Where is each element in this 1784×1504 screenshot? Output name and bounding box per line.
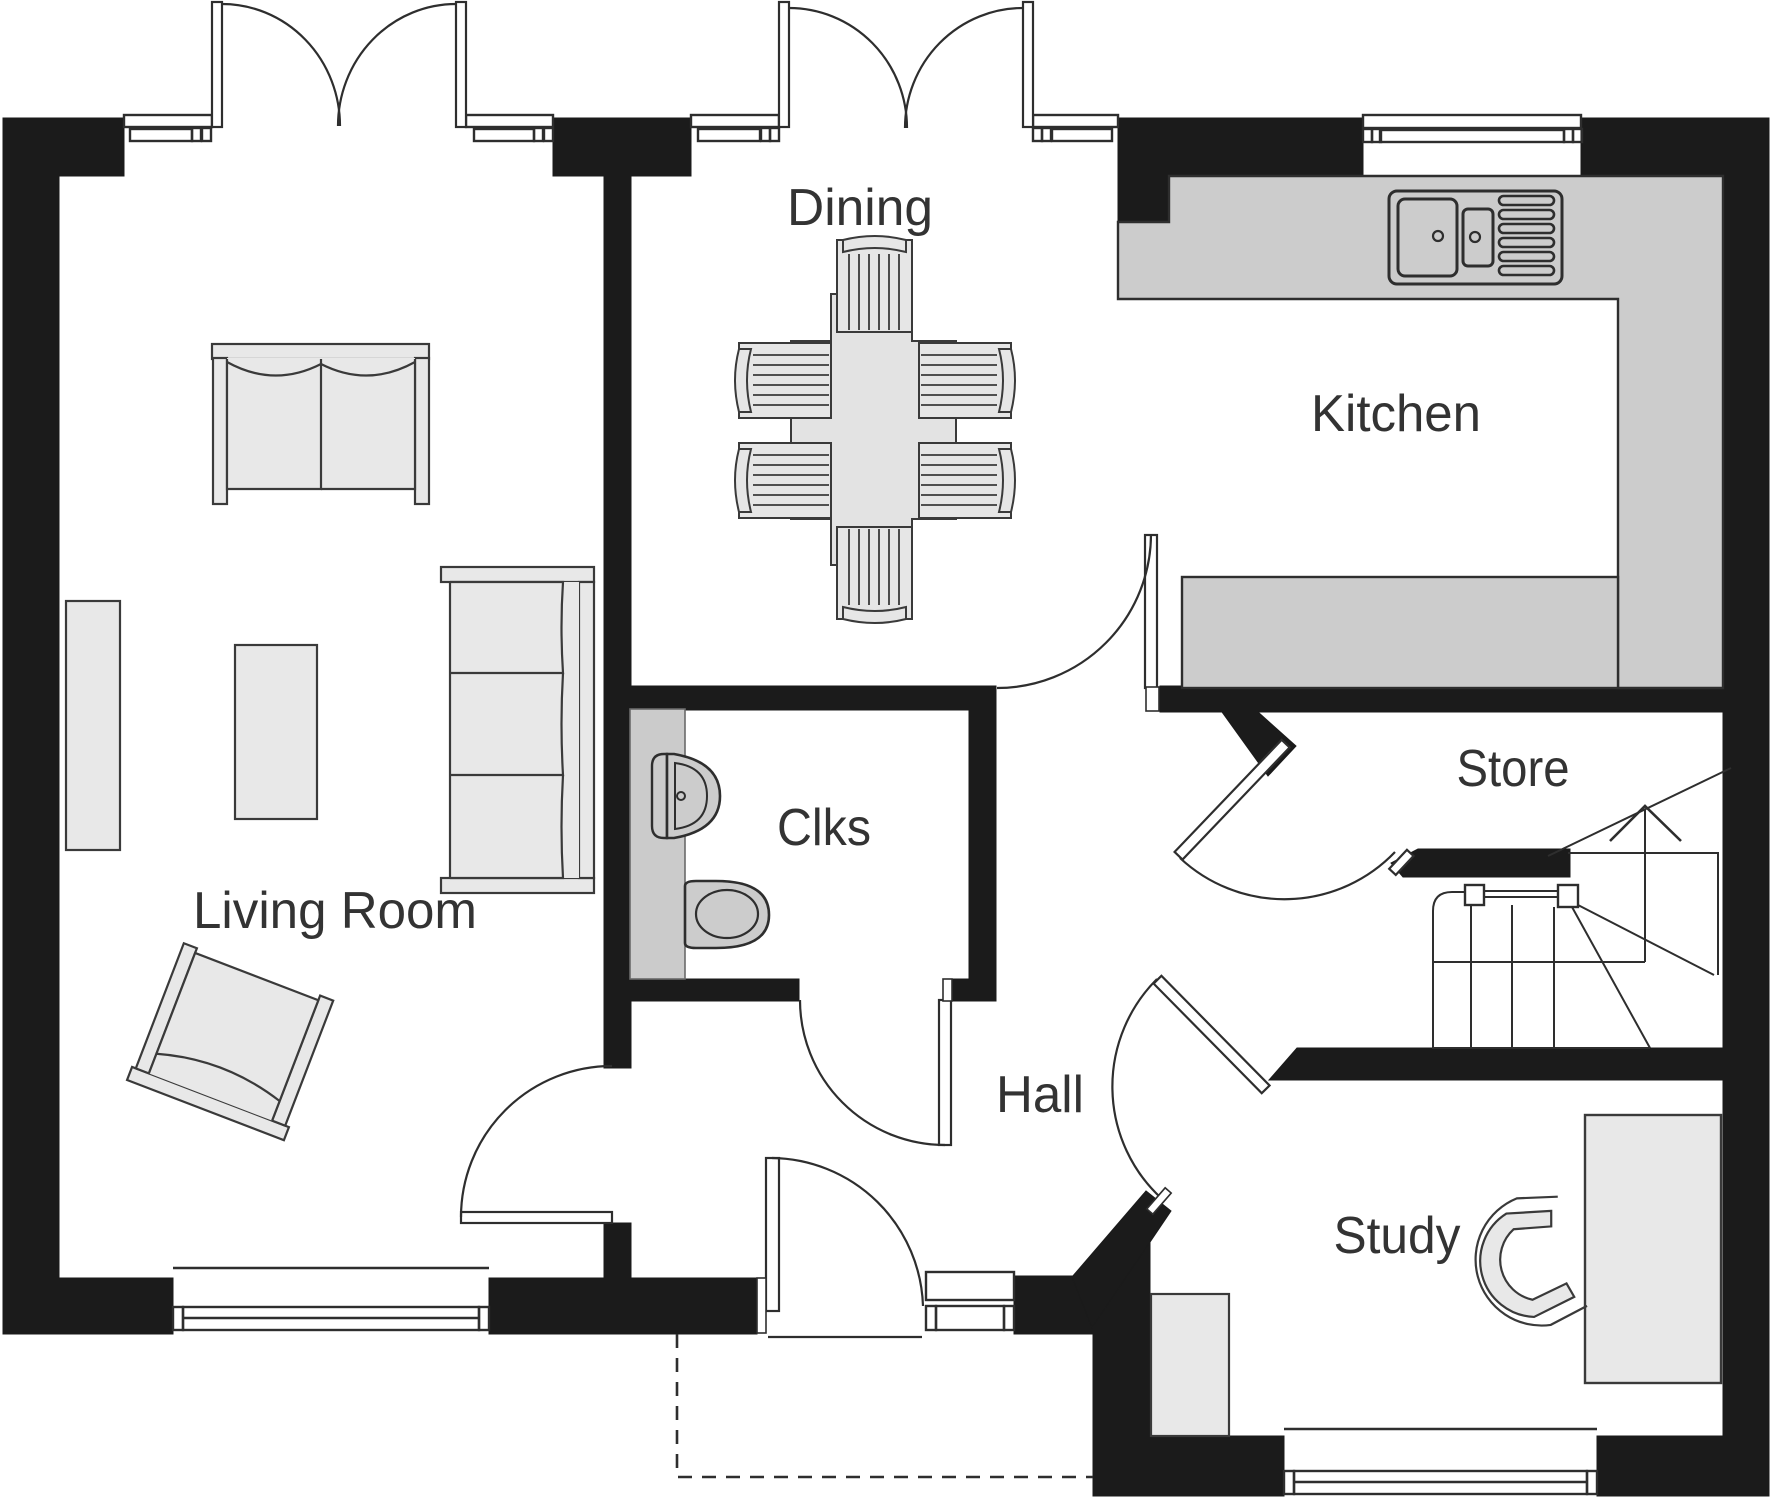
svg-text:Study: Study (1334, 1207, 1461, 1265)
svg-text:Store: Store (1457, 740, 1570, 798)
svg-text:Living Room: Living Room (193, 882, 477, 940)
svg-text:Clks: Clks (777, 799, 871, 857)
svg-text:Kitchen: Kitchen (1311, 385, 1481, 443)
svg-text:Dining: Dining (787, 179, 933, 237)
svg-text:Hall: Hall (996, 1066, 1084, 1124)
